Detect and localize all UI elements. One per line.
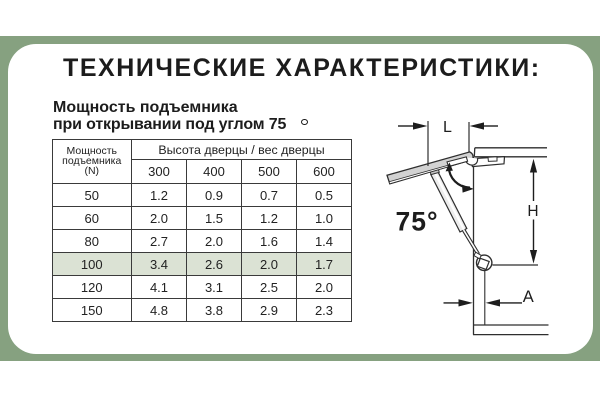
svg-text:A: A — [523, 288, 534, 306]
svg-text:H: H — [527, 203, 538, 220]
svg-text:L: L — [443, 119, 452, 136]
svg-text:75°: 75° — [396, 207, 439, 237]
